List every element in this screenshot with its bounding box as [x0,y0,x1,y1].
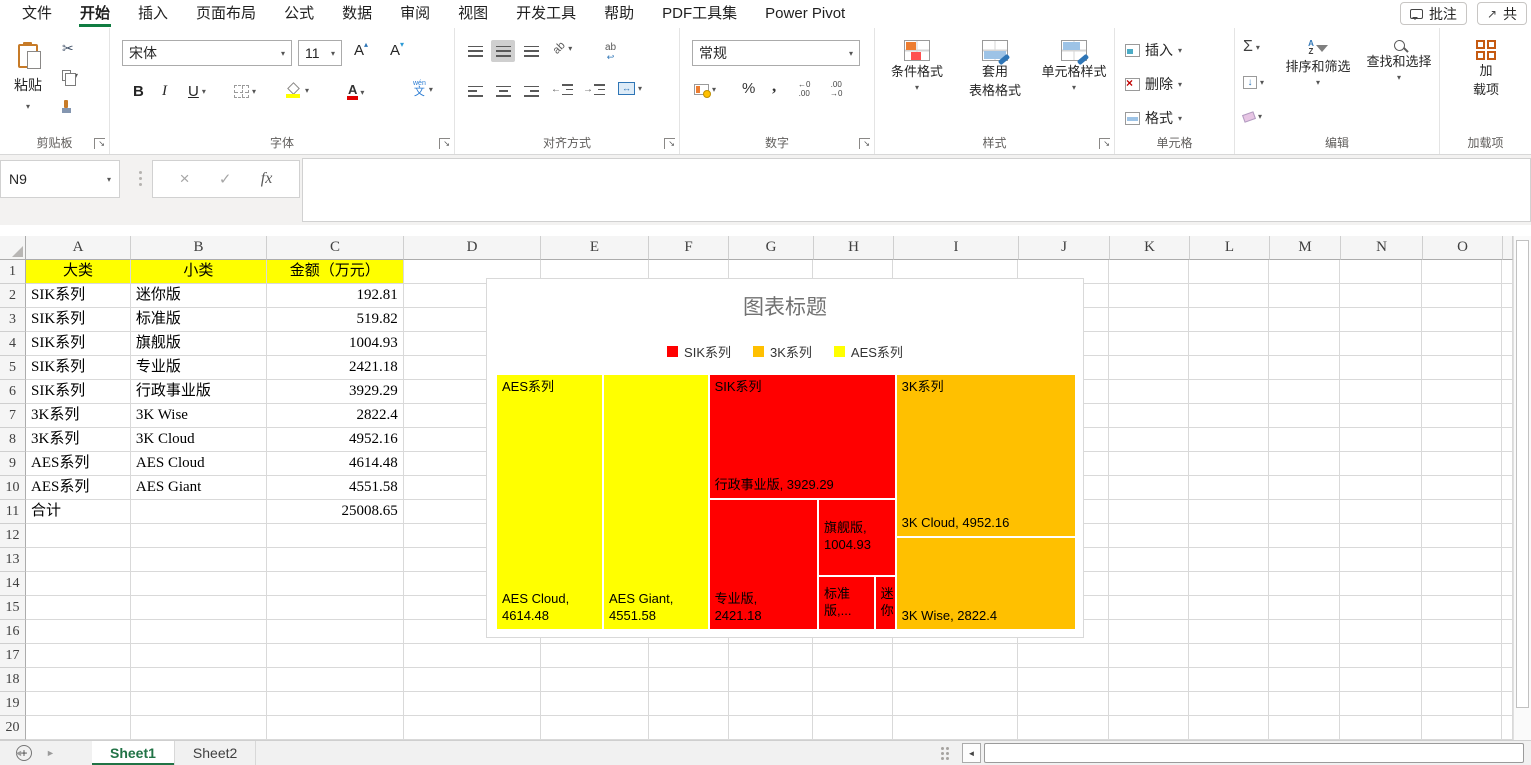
cell-C1[interactable]: 金额（万元） [267,260,404,284]
cell-O7[interactable] [1422,404,1502,428]
cell-K18[interactable] [1109,668,1189,692]
horizontal-scrollbar-thumb[interactable] [984,743,1524,763]
treemap-cell-sik-flag[interactable]: 旗舰版, 1004.93 [818,499,896,576]
row-header-12[interactable]: 12 [0,524,26,548]
cell-N3[interactable] [1340,308,1422,332]
cell-A3[interactable]: SIK系列 [26,308,131,332]
cell-A4[interactable]: SIK系列 [26,332,131,356]
cell-H19[interactable] [813,692,893,716]
cell-M2[interactable] [1269,284,1340,308]
copy-button[interactable]: ▾ [62,70,78,81]
cell-C18[interactable] [267,668,404,692]
treemap-cell-sik-std[interactable]: 标准版,... [818,576,875,630]
vertical-scrollbar-thumb[interactable] [1516,240,1529,708]
decrease-indent-button[interactable]: ← [551,84,573,95]
treemap-cell-3k-wise[interactable]: 3K Wise, 2822.4 [896,537,1076,630]
column-header-E[interactable]: E [541,236,649,260]
cell-H17[interactable] [813,644,893,668]
legend-item-AES系列[interactable]: AES系列 [834,342,903,361]
bold-button[interactable]: B [133,83,144,100]
treemap-chart[interactable]: 图表标题 SIK系列3K系列AES系列 AES系列AES Cloud, 4614… [486,278,1084,638]
cell-C16[interactable] [267,620,404,644]
column-header-G[interactable]: G [729,236,814,260]
column-header-F[interactable]: F [649,236,729,260]
cell-N5[interactable] [1340,356,1422,380]
cell-F18[interactable] [649,668,729,692]
cell-N8[interactable] [1340,428,1422,452]
treemap-cell-sik-admin[interactable]: SIK系列行政事业版, 3929.29 [709,374,896,499]
cell-M11[interactable] [1269,500,1340,524]
cell-O16[interactable] [1422,620,1502,644]
cell-F19[interactable] [649,692,729,716]
cell-B10[interactable]: AES Giant [131,476,267,500]
row-header-11[interactable]: 11 [0,500,26,524]
fill-color-dropdown-icon[interactable]: ▾ [305,86,309,95]
column-header-L[interactable]: L [1190,236,1270,260]
format-cells-button[interactable]: 格式▾ [1125,108,1182,128]
accounting-dropdown-icon[interactable]: ▾ [712,85,716,94]
cancel-icon[interactable]: × [180,169,190,189]
cell-B7[interactable]: 3K Wise [131,404,267,428]
cell-C2[interactable]: 192.81 [267,284,404,308]
cell-B16[interactable] [131,620,267,644]
cell-E20[interactable] [541,716,649,740]
phonetic-guide-button[interactable]: wén文 ▾ [413,80,433,98]
align-middle-button[interactable] [491,40,515,62]
share-button[interactable]: ↗ 共 [1477,2,1527,25]
row-header-17[interactable]: 17 [0,644,26,668]
cell-G18[interactable] [729,668,814,692]
cell-A9[interactable]: AES系列 [26,452,131,476]
cell-B17[interactable] [131,644,267,668]
cell-M14[interactable] [1269,572,1340,596]
cell-O5[interactable] [1422,356,1502,380]
cut-button[interactable]: ✂ [62,40,74,58]
delete-dropdown-icon[interactable]: ▾ [1178,80,1182,89]
column-header-N[interactable]: N [1341,236,1423,260]
cell-B5[interactable]: 专业版 [131,356,267,380]
comments-button[interactable]: 批注 [1400,2,1467,25]
cell-O1[interactable] [1422,260,1502,284]
row-header-14[interactable]: 14 [0,572,26,596]
cell-E17[interactable] [541,644,649,668]
column-header-D[interactable]: D [404,236,541,260]
styles-dialog-launcher[interactable]: ↘ [1099,138,1110,149]
align-top-button[interactable] [463,40,487,62]
treemap-cell-aes-giant[interactable]: AES Giant, 4551.58 [603,374,709,630]
cell-O12[interactable] [1422,524,1502,548]
cell-N15[interactable] [1340,596,1422,620]
orientation-button[interactable]: ab▾ [553,42,572,54]
row-header-7[interactable]: 7 [0,404,26,428]
cell-K13[interactable] [1109,548,1189,572]
legend-item-SIK系列[interactable]: SIK系列 [667,342,731,361]
cell-K10[interactable] [1109,476,1189,500]
cell-L9[interactable] [1189,452,1269,476]
cell-C12[interactable] [267,524,404,548]
cell-N4[interactable] [1340,332,1422,356]
cell-N13[interactable] [1340,548,1422,572]
cell-A17[interactable] [26,644,131,668]
insert-function-icon[interactable]: fx [261,170,273,188]
cell-K3[interactable] [1109,308,1189,332]
cell-B14[interactable] [131,572,267,596]
fill-dropdown-icon[interactable]: ▾ [1260,78,1264,87]
format-as-table-button[interactable]: 套用 表格格式 [955,40,1035,98]
cell-N20[interactable] [1340,716,1422,740]
cell-L15[interactable] [1189,596,1269,620]
cell-K9[interactable] [1109,452,1189,476]
paste-dropdown-icon[interactable]: ▾ [26,102,30,111]
cell-K17[interactable] [1109,644,1189,668]
formula-bar-resize-handle[interactable] [139,171,142,174]
column-header-O[interactable]: O [1423,236,1503,260]
cell-N11[interactable] [1340,500,1422,524]
decrease-decimal-button[interactable]: .00→0 [830,81,842,99]
cell-C11[interactable]: 25008.65 [267,500,404,524]
cell-A6[interactable]: SIK系列 [26,380,131,404]
cell-O20[interactable] [1422,716,1502,740]
merge-dropdown-icon[interactable]: ▾ [638,84,642,93]
cell-N10[interactable] [1340,476,1422,500]
cell-C19[interactable] [267,692,404,716]
clipboard-dialog-launcher[interactable]: ↘ [94,138,105,149]
cell-C14[interactable] [267,572,404,596]
cell-M10[interactable] [1269,476,1340,500]
cell-A18[interactable] [26,668,131,692]
insert-cells-button[interactable]: 插入▾ [1125,40,1182,60]
underline-dropdown-icon[interactable]: ▾ [202,87,206,96]
cell-B9[interactable]: AES Cloud [131,452,267,476]
cell-O3[interactable] [1422,308,1502,332]
alignment-dialog-launcher[interactable]: ↘ [664,138,675,149]
increase-decimal-button[interactable]: ←0.00 [798,81,810,99]
find-select-button[interactable]: 查找和选择 ▾ [1361,40,1437,82]
cell-N7[interactable] [1340,404,1422,428]
cell-L5[interactable] [1189,356,1269,380]
cell-K6[interactable] [1109,380,1189,404]
cell-D17[interactable] [404,644,541,668]
cell-B4[interactable]: 旗舰版 [131,332,267,356]
align-right-button[interactable] [519,80,543,102]
cell-L10[interactable] [1189,476,1269,500]
autosum-dropdown-icon[interactable]: ▾ [1256,43,1260,52]
column-header-I[interactable]: I [894,236,1019,260]
ribbon-tab-PDF工具集[interactable]: PDF工具集 [648,0,751,28]
cell-L1[interactable] [1189,260,1269,284]
sheet-nav-next-icon[interactable]: ► [46,741,55,765]
cell-G17[interactable] [729,644,814,668]
cell-L4[interactable] [1189,332,1269,356]
addins-button[interactable]: 加 载项 [1464,40,1508,97]
align-left-button[interactable] [463,80,487,102]
fill-button[interactable]: ↓▾ [1243,76,1264,89]
sheet-tab-Sheet2[interactable]: Sheet2 [175,741,256,765]
cell-I18[interactable] [893,668,1018,692]
row-header-4[interactable]: 4 [0,332,26,356]
cell-L13[interactable] [1189,548,1269,572]
column-header-C[interactable]: C [267,236,404,260]
ribbon-tab-审阅[interactable]: 审阅 [386,0,444,28]
cell-B2[interactable]: 迷你版 [131,284,267,308]
row-header-15[interactable]: 15 [0,596,26,620]
cell-B3[interactable]: 标准版 [131,308,267,332]
cell-K11[interactable] [1109,500,1189,524]
cell-B19[interactable] [131,692,267,716]
ribbon-tab-Power Pivot[interactable]: Power Pivot [751,0,859,28]
cell-O17[interactable] [1422,644,1502,668]
insert-dropdown-icon[interactable]: ▾ [1178,46,1182,55]
cell-M18[interactable] [1269,668,1340,692]
ribbon-tab-数据[interactable]: 数据 [328,0,386,28]
ribbon-tab-公式[interactable]: 公式 [270,0,328,28]
increase-indent-button[interactable]: → [583,84,605,95]
cell-L6[interactable] [1189,380,1269,404]
cell-A13[interactable] [26,548,131,572]
cell-J18[interactable] [1018,668,1109,692]
vertical-scrollbar[interactable] [1513,236,1531,740]
row-header-13[interactable]: 13 [0,548,26,572]
cell-K19[interactable] [1109,692,1189,716]
cell-A15[interactable] [26,596,131,620]
cell-L18[interactable] [1189,668,1269,692]
number-format-select[interactable]: 常规 ▾ [692,40,860,66]
cell-B12[interactable] [131,524,267,548]
cell-N9[interactable] [1340,452,1422,476]
cell-N6[interactable] [1340,380,1422,404]
delete-cells-button[interactable]: 删除▾ [1125,74,1182,94]
cell-L19[interactable] [1189,692,1269,716]
cell-A14[interactable] [26,572,131,596]
cell-M17[interactable] [1269,644,1340,668]
row-header-9[interactable]: 9 [0,452,26,476]
cell-B8[interactable]: 3K Cloud [131,428,267,452]
column-header-M[interactable]: M [1270,236,1341,260]
cell-C13[interactable] [267,548,404,572]
cell-B1[interactable]: 小类 [131,260,267,284]
sort-filter-button[interactable]: AZ 排序和筛选 ▾ [1277,40,1359,87]
name-box[interactable]: N9 ▾ [0,160,120,198]
cell-I19[interactable] [893,692,1018,716]
cell-B18[interactable] [131,668,267,692]
cell-K20[interactable] [1109,716,1189,740]
ribbon-tab-页面布局[interactable]: 页面布局 [182,0,270,28]
cell-C6[interactable]: 3929.29 [267,380,404,404]
clear-button[interactable]: ▾ [1243,112,1262,121]
cell-O8[interactable] [1422,428,1502,452]
cell-F17[interactable] [649,644,729,668]
cell-O18[interactable] [1422,668,1502,692]
cell-A7[interactable]: 3K系列 [26,404,131,428]
cell-D19[interactable] [404,692,541,716]
row-header-3[interactable]: 3 [0,308,26,332]
enter-icon[interactable]: ✓ [219,170,232,188]
cell-O9[interactable] [1422,452,1502,476]
cell-C8[interactable]: 4952.16 [267,428,404,452]
italic-button[interactable]: I [162,83,167,100]
cell-M16[interactable] [1269,620,1340,644]
treemap-cell-sik-pro[interactable]: 专业版, 2421.18 [709,499,818,630]
column-header-A[interactable]: A [26,236,131,260]
cell-O4[interactable] [1422,332,1502,356]
row-header-1[interactable]: 1 [0,260,26,284]
clear-dropdown-icon[interactable]: ▾ [1258,112,1262,121]
sheet-tab-Sheet1[interactable]: Sheet1 [92,741,175,765]
cell-O14[interactable] [1422,572,1502,596]
cell-C15[interactable] [267,596,404,620]
cell-L12[interactable] [1189,524,1269,548]
name-box-dropdown-icon[interactable]: ▾ [107,175,111,184]
cell-K1[interactable] [1109,260,1189,284]
underline-button[interactable]: U▾ [188,83,206,100]
ribbon-tab-插入[interactable]: 插入 [124,0,182,28]
cell-A11[interactable]: 合计 [26,500,131,524]
fill-color-button[interactable]: ▾ [286,83,309,98]
cell-M4[interactable] [1269,332,1340,356]
scrollbar-resize-handle[interactable] [941,747,944,750]
legend-item-3K系列[interactable]: 3K系列 [753,342,812,361]
cell-E19[interactable] [541,692,649,716]
select-all-corner[interactable] [0,236,26,260]
font-name-select[interactable]: 宋体 ▾ [122,40,292,66]
cell-K16[interactable] [1109,620,1189,644]
cell-O10[interactable] [1422,476,1502,500]
treemap-cell-aes-cloud[interactable]: AES系列AES Cloud, 4614.48 [496,374,603,630]
cell-M6[interactable] [1269,380,1340,404]
cell-O11[interactable] [1422,500,1502,524]
row-header-18[interactable]: 18 [0,668,26,692]
cell-M3[interactable] [1269,308,1340,332]
column-header-B[interactable]: B [131,236,267,260]
cell-M20[interactable] [1269,716,1340,740]
cell-B13[interactable] [131,548,267,572]
cell-L2[interactable] [1189,284,1269,308]
cell-L8[interactable] [1189,428,1269,452]
cell-C3[interactable]: 519.82 [267,308,404,332]
cell-I17[interactable] [893,644,1018,668]
row-header-10[interactable]: 10 [0,476,26,500]
cell-J20[interactable] [1018,716,1109,740]
cell-K15[interactable] [1109,596,1189,620]
font-color-dropdown-icon[interactable]: ▾ [360,88,364,97]
cell-M7[interactable] [1269,404,1340,428]
cell-L17[interactable] [1189,644,1269,668]
cell-A5[interactable]: SIK系列 [26,356,131,380]
cell-M12[interactable] [1269,524,1340,548]
cell-C20[interactable] [267,716,404,740]
cell-C4[interactable]: 1004.93 [267,332,404,356]
cell-B20[interactable] [131,716,267,740]
cell-C17[interactable] [267,644,404,668]
scroll-left-button[interactable]: ◄ [962,743,981,763]
format-painter-button[interactable] [62,100,71,118]
autosum-button[interactable]: Σ▾ [1243,40,1260,54]
cell-M19[interactable] [1269,692,1340,716]
cell-M9[interactable] [1269,452,1340,476]
cell-O2[interactable] [1422,284,1502,308]
row-header-20[interactable]: 20 [0,716,26,740]
cell-K2[interactable] [1109,284,1189,308]
cell-L14[interactable] [1189,572,1269,596]
cell-A2[interactable]: SIK系列 [26,284,131,308]
cell-A20[interactable] [26,716,131,740]
cell-C9[interactable]: 4614.48 [267,452,404,476]
cell-O19[interactable] [1422,692,1502,716]
cell-H20[interactable] [813,716,893,740]
cell-M13[interactable] [1269,548,1340,572]
borders-dropdown-icon[interactable]: ▾ [252,87,256,96]
phonetic-dropdown-icon[interactable]: ▾ [429,85,433,94]
orientation-dropdown-icon[interactable]: ▾ [568,44,572,53]
cell-L11[interactable] [1189,500,1269,524]
row-header-8[interactable]: 8 [0,428,26,452]
formula-input[interactable] [302,158,1531,222]
font-color-button[interactable]: A▾ [348,84,364,100]
comma-style-button[interactable]: , [772,76,776,96]
cell-styles-button[interactable]: 单元格样式 ▾ [1037,40,1111,92]
cell-O13[interactable] [1422,548,1502,572]
cell-L3[interactable] [1189,308,1269,332]
row-header-19[interactable]: 19 [0,692,26,716]
cell-L7[interactable] [1189,404,1269,428]
ribbon-tab-文件[interactable]: 文件 [8,0,66,28]
cell-K12[interactable] [1109,524,1189,548]
cell-K5[interactable] [1109,356,1189,380]
cell-N16[interactable] [1340,620,1422,644]
paste-button[interactable]: 粘贴 ▾ [6,38,50,138]
sheet-nav-prev-icon[interactable]: ◄ [14,741,23,765]
cell-J19[interactable] [1018,692,1109,716]
shrink-font-button[interactable]: A▾ [390,42,404,59]
ribbon-tab-开始[interactable]: 开始 [66,0,124,28]
cell-A12[interactable] [26,524,131,548]
cell-M5[interactable] [1269,356,1340,380]
format-dropdown-icon[interactable]: ▾ [1178,114,1182,123]
cell-C10[interactable]: 4551.58 [267,476,404,500]
cell-M15[interactable] [1269,596,1340,620]
treemap-cell-sik-mini[interactable]: 迷你 [875,576,896,630]
row-header-2[interactable]: 2 [0,284,26,308]
treemap-cell-3k-cloud[interactable]: 3K系列3K Cloud, 4952.16 [896,374,1076,537]
cell-N1[interactable] [1340,260,1422,284]
cell-N19[interactable] [1340,692,1422,716]
wrap-text-button[interactable]: ab↩ [605,37,616,62]
ribbon-tab-帮助[interactable]: 帮助 [590,0,648,28]
cell-G20[interactable] [729,716,814,740]
row-header-5[interactable]: 5 [0,356,26,380]
align-center-button[interactable] [491,80,515,102]
cell-A16[interactable] [26,620,131,644]
cell-L20[interactable] [1189,716,1269,740]
cell-J17[interactable] [1018,644,1109,668]
ribbon-tab-开发工具[interactable]: 开发工具 [502,0,590,28]
number-dialog-launcher[interactable]: ↘ [859,138,870,149]
cell-I20[interactable] [893,716,1018,740]
cell-N18[interactable] [1340,668,1422,692]
cell-A1[interactable]: 大类 [26,260,131,284]
cell-N14[interactable] [1340,572,1422,596]
cell-C5[interactable]: 2421.18 [267,356,404,380]
row-header-16[interactable]: 16 [0,620,26,644]
cell-O15[interactable] [1422,596,1502,620]
cell-M1[interactable] [1269,260,1340,284]
grow-font-button[interactable]: A▴ [354,42,368,59]
cell-C7[interactable]: 2822.4 [267,404,404,428]
cell-N2[interactable] [1340,284,1422,308]
cell-D20[interactable] [404,716,541,740]
column-header-H[interactable]: H [814,236,894,260]
align-bottom-button[interactable] [519,40,543,62]
